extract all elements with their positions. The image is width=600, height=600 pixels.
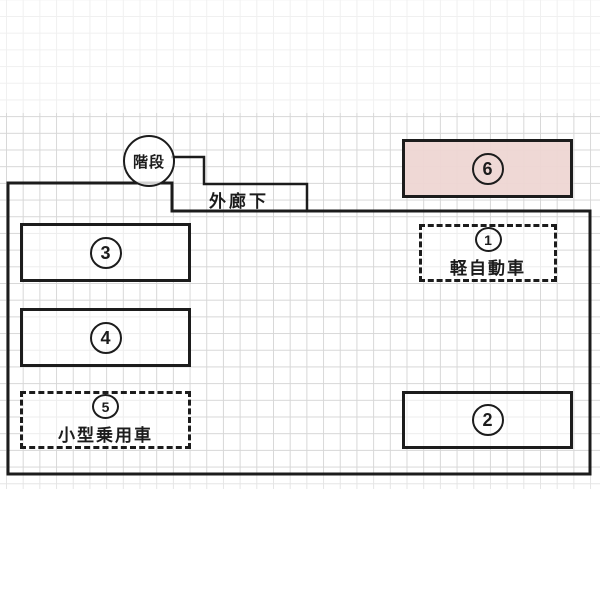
space-4-number: 4 bbox=[90, 322, 122, 354]
parking-space-3: 3 bbox=[20, 223, 191, 282]
parking-layout-diagram: 階段 外廊下 6 3 4 5 小型乗用車 1 軽自動車 2 bbox=[0, 0, 600, 600]
space-1-number: 1 bbox=[475, 227, 502, 252]
stairs-label: 階段 bbox=[133, 151, 165, 172]
parking-space-2: 2 bbox=[402, 391, 573, 449]
space-5-number: 5 bbox=[92, 394, 119, 419]
parking-space-5: 5 小型乗用車 bbox=[20, 391, 191, 449]
stairs-circle: 階段 bbox=[123, 135, 175, 187]
space-5-label: 小型乗用車 bbox=[58, 421, 153, 446]
space-3-number: 3 bbox=[90, 237, 122, 269]
space-2-number: 2 bbox=[472, 404, 504, 436]
parking-space-4: 4 bbox=[20, 308, 191, 367]
space-6-number: 6 bbox=[472, 153, 504, 185]
parking-space-6: 6 bbox=[402, 139, 573, 198]
corridor-label: 外廊下 bbox=[187, 187, 291, 212]
building-outline bbox=[0, 0, 600, 600]
parking-space-1: 1 軽自動車 bbox=[419, 224, 557, 282]
space-1-label: 軽自動車 bbox=[450, 254, 526, 279]
